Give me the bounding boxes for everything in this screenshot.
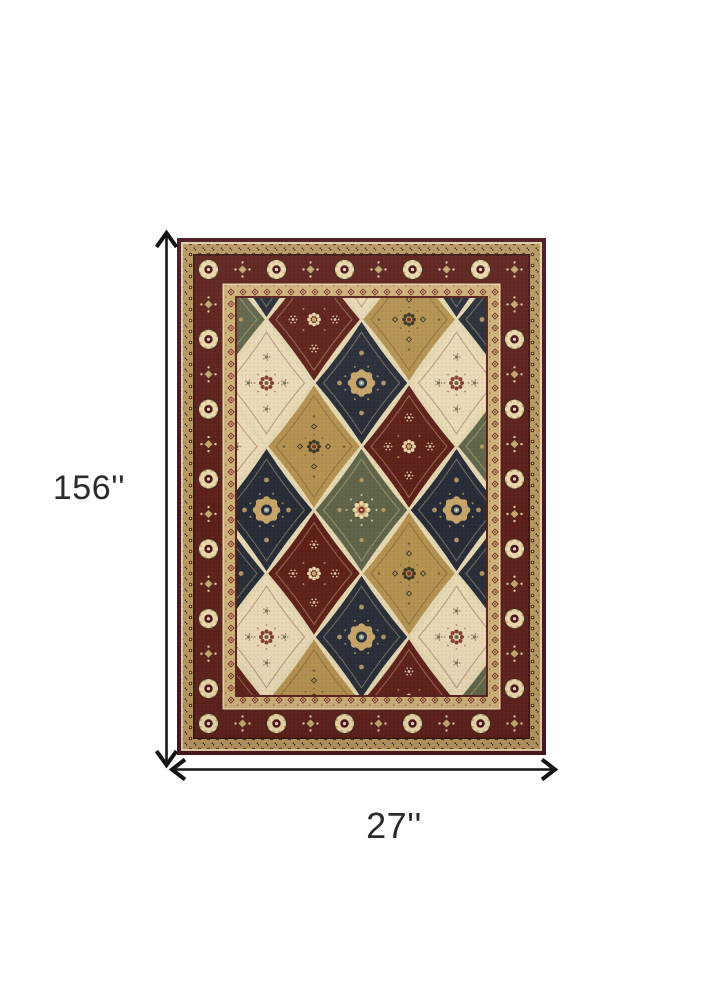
width-dimension-label: 27'' [334, 806, 454, 846]
product-dimension-diagram: 156'' 27'' [0, 0, 726, 1000]
vertical-double-arrow-icon [146, 226, 188, 772]
height-dimension-label: 156'' [34, 470, 144, 507]
rug-image [177, 238, 546, 755]
rug-svg [177, 238, 546, 755]
horizontal-double-arrow-icon [164, 752, 562, 788]
